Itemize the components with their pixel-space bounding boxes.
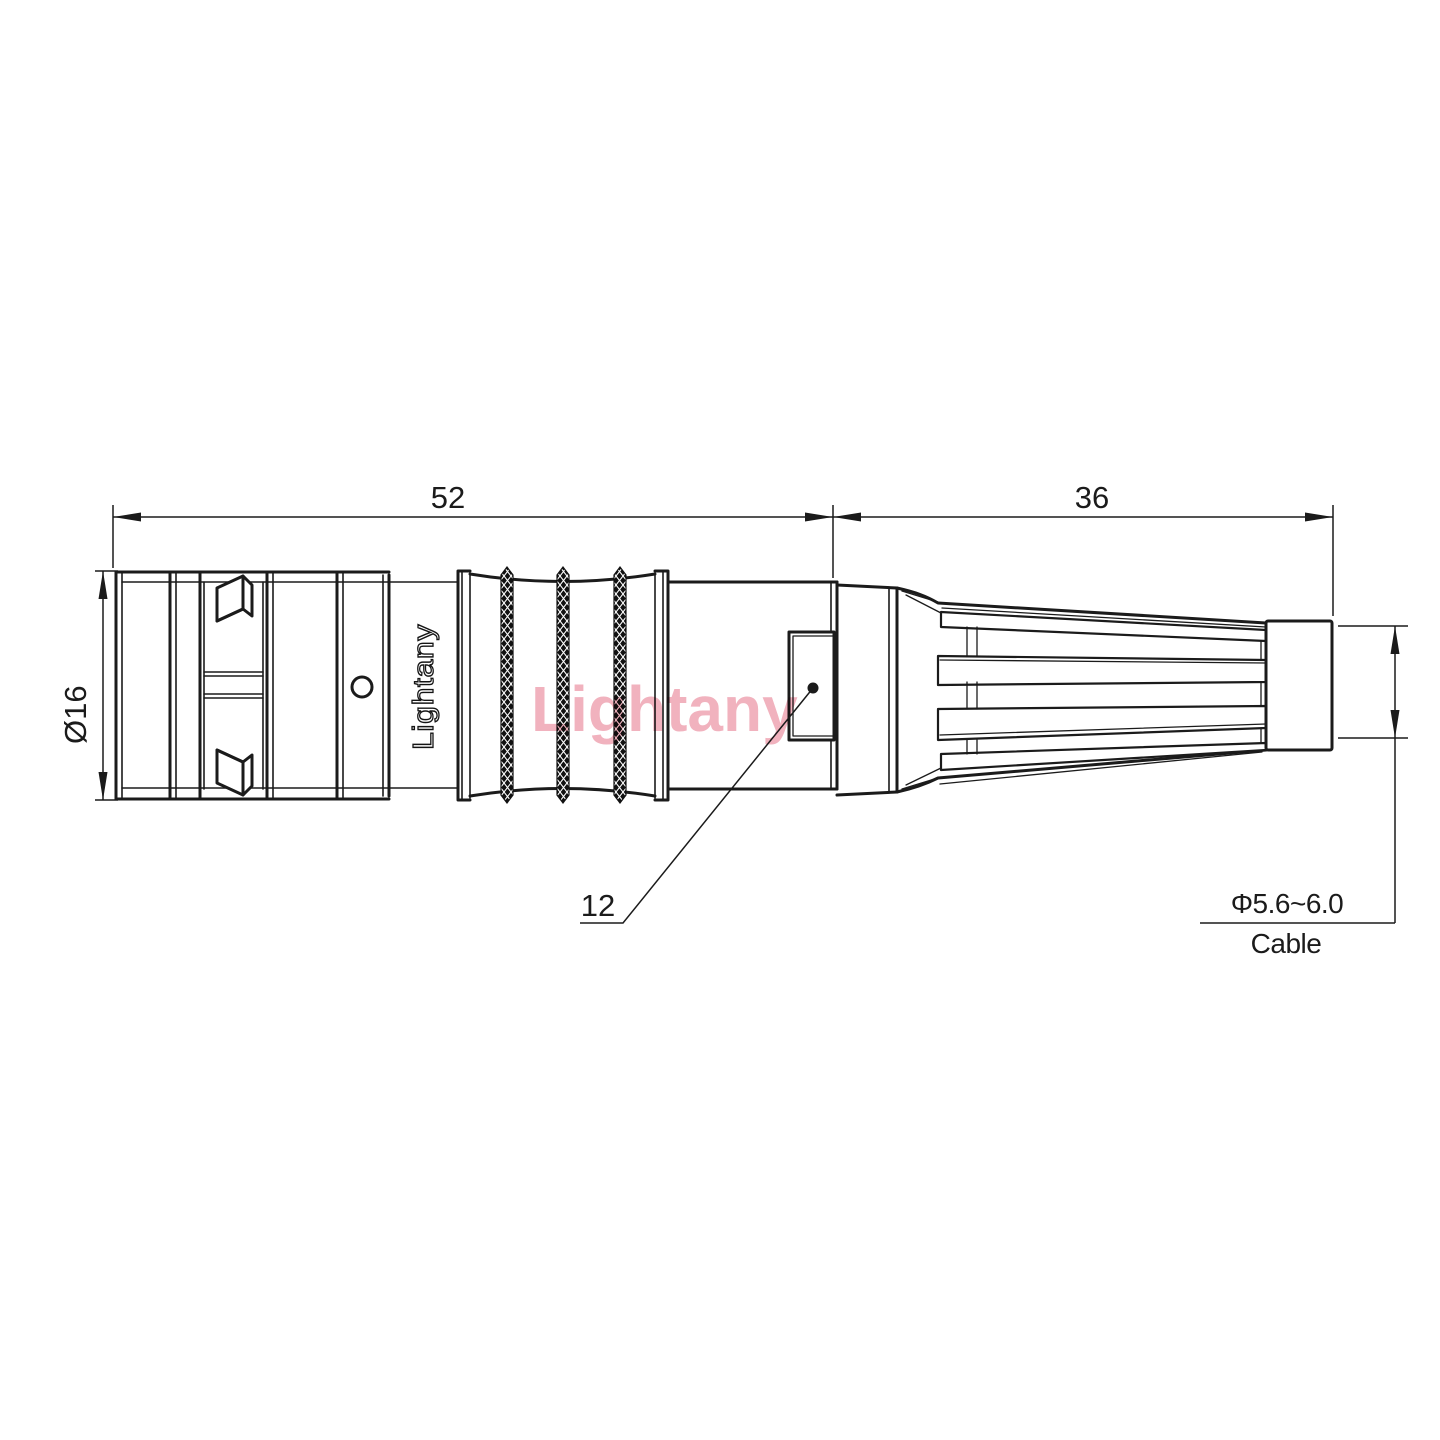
cable-end-cap	[1266, 621, 1332, 750]
boot-fin	[938, 706, 1266, 740]
cable-word-label: Cable	[1251, 928, 1322, 959]
dim-12-label: 12	[581, 888, 615, 923]
knurl-ring-left-inner	[462, 571, 470, 800]
arrowhead-up-icon	[1391, 626, 1400, 654]
strain-relief	[837, 585, 1332, 795]
arrowhead-right-icon	[805, 513, 833, 522]
boot-fin	[941, 612, 1266, 641]
latch-tab-top-side	[243, 576, 252, 616]
dim-36-label: 36	[1075, 480, 1109, 515]
collar-bottom	[837, 792, 897, 795]
vent-hole	[352, 677, 372, 697]
dim-diameter-label: Ø16	[58, 685, 93, 744]
arrowhead-down-icon	[1391, 710, 1400, 738]
strain-relief-collar	[837, 585, 897, 795]
arrowhead-left-icon	[833, 513, 861, 522]
brand-ring-text: Lightany	[408, 624, 440, 750]
arrowhead-up-icon	[99, 571, 108, 599]
connector-technical-drawing: Lightany	[0, 0, 1440, 1440]
drawing-canvas: Lightany	[0, 0, 1440, 1440]
latch-slot	[204, 576, 263, 795]
plug-front-shell	[116, 572, 458, 799]
arrowhead-left-icon	[113, 513, 141, 522]
brand-ring: Lightany	[408, 624, 440, 750]
latch-center-band	[204, 672, 263, 698]
dim-52-label: 52	[431, 480, 465, 515]
cable-spec-label: Φ5.6~6.0	[1231, 888, 1344, 919]
watermark-text: Lightany	[531, 673, 798, 745]
collar-top	[837, 585, 897, 588]
strain-relief-boot	[897, 588, 1266, 792]
arrowhead-down-icon	[99, 772, 108, 800]
dim-diameter-16: Ø16	[58, 571, 118, 800]
arrowhead-right-icon	[1305, 513, 1333, 522]
dim-52: 52	[113, 480, 833, 578]
knurl-ring-left	[458, 571, 470, 800]
latch-tab-bottom-side	[243, 755, 252, 795]
boot-shoulder-flutes	[902, 591, 941, 789]
knurl-band	[501, 567, 513, 803]
